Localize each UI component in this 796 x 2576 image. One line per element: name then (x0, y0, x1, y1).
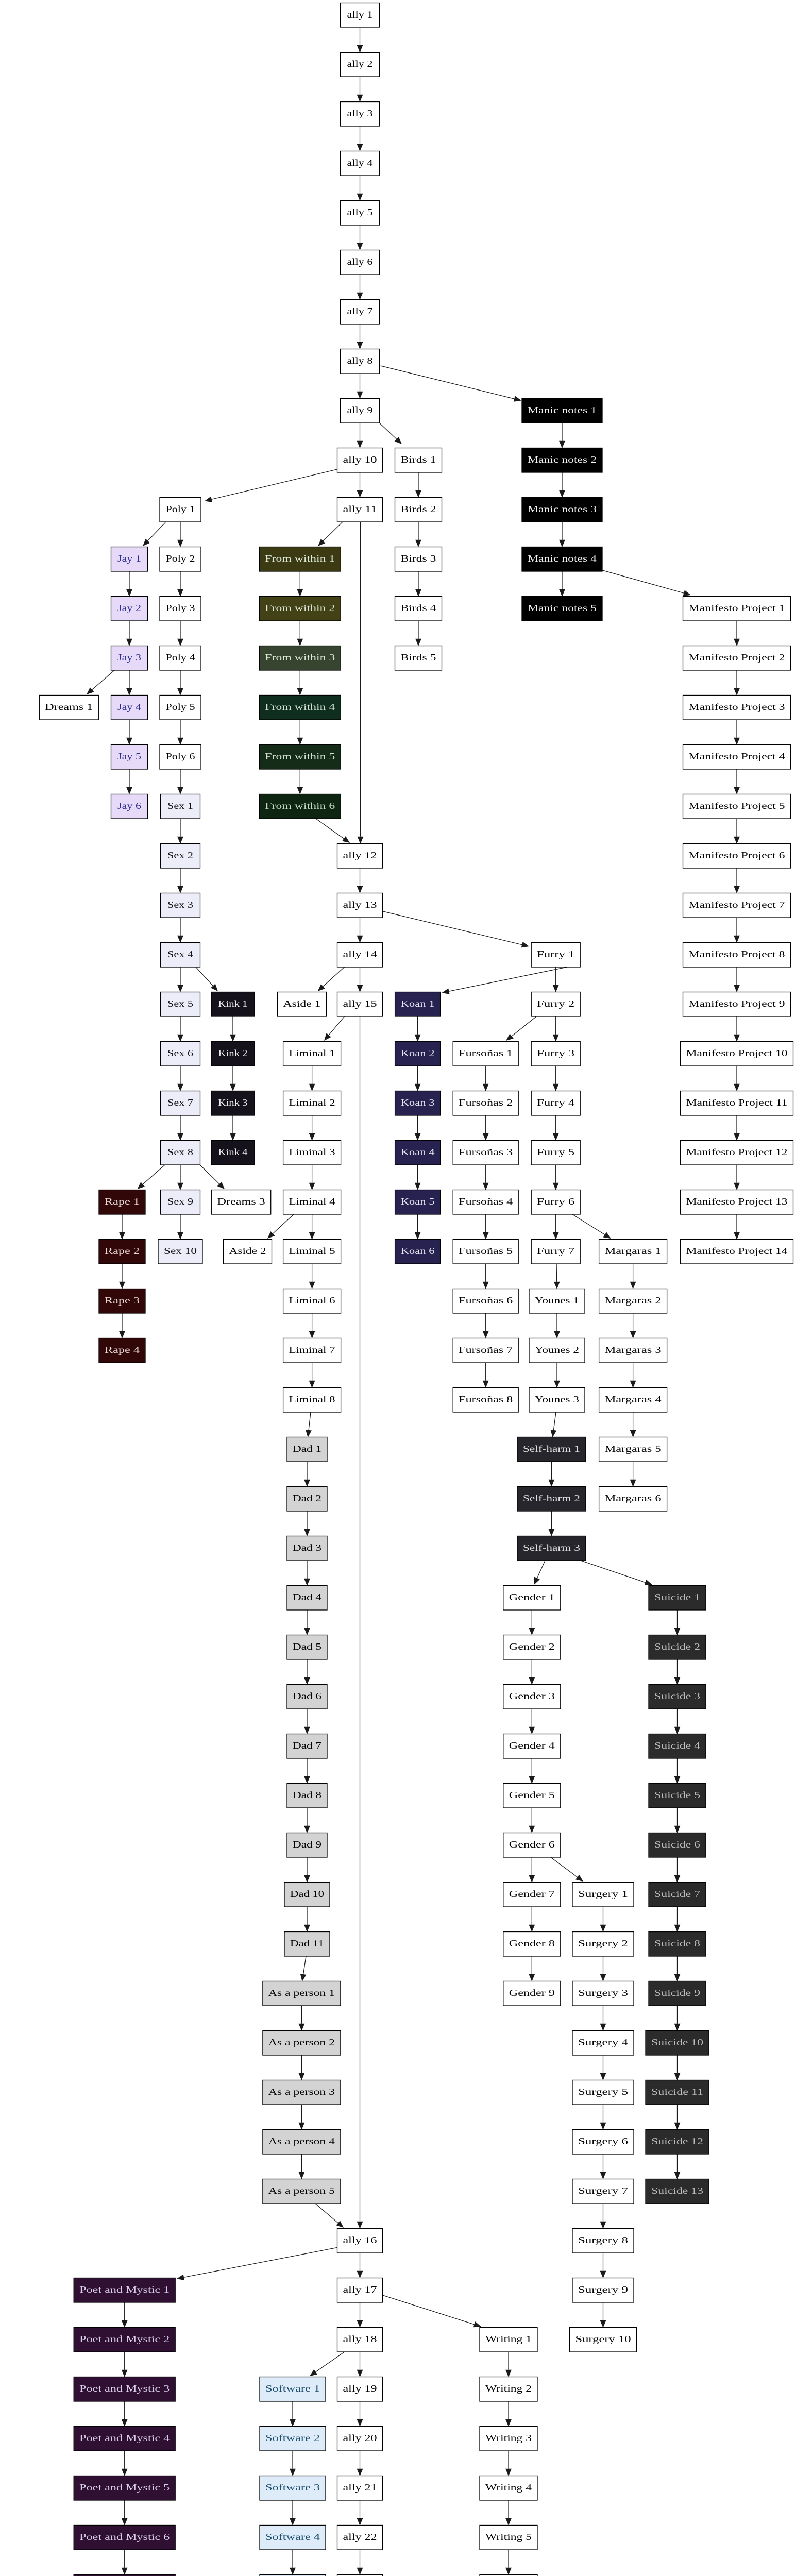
svg-text:ally 14: ally 14 (343, 949, 377, 959)
svg-text:Margaras 3: Margaras 3 (605, 1345, 662, 1355)
svg-text:Suicide 7: Suicide 7 (654, 1889, 700, 1899)
svg-text:Poly 3: Poly 3 (166, 603, 195, 613)
svg-text:Dad 6: Dad 6 (293, 1691, 321, 1701)
svg-text:Younes 1: Younes 1 (535, 1295, 579, 1306)
svg-text:Koan 4: Koan 4 (401, 1147, 435, 1157)
svg-text:ally 4: ally 4 (347, 158, 373, 168)
svg-text:ally 22: ally 22 (343, 2532, 377, 2542)
svg-text:Manifesto Project 9: Manifesto Project 9 (689, 998, 785, 1009)
svg-text:Suicide 4: Suicide 4 (654, 1740, 700, 1751)
svg-text:Margaras 6: Margaras 6 (605, 1493, 662, 1503)
svg-text:Liminal 1: Liminal 1 (289, 1048, 335, 1058)
svg-text:Suicide 5: Suicide 5 (654, 1790, 700, 1800)
svg-text:Manifesto Project 11: Manifesto Project 11 (686, 1097, 788, 1108)
svg-text:Koan 3: Koan 3 (401, 1097, 435, 1108)
svg-text:Poet and Mystic 3: Poet and Mystic 3 (79, 2383, 170, 2394)
svg-text:Gender 1: Gender 1 (509, 1592, 555, 1602)
svg-text:From within 5: From within 5 (265, 751, 335, 761)
svg-text:ally 17: ally 17 (343, 2284, 377, 2295)
svg-text:Gender 2: Gender 2 (509, 1641, 555, 1652)
svg-text:Manifesto Project 10: Manifesto Project 10 (686, 1048, 788, 1058)
svg-text:Surgery 7: Surgery 7 (578, 2185, 628, 2196)
svg-text:Koan 1: Koan 1 (401, 998, 435, 1009)
svg-text:Jay 5: Jay 5 (117, 751, 141, 761)
svg-text:Writing 5: Writing 5 (485, 2532, 532, 2542)
svg-text:Jay 3: Jay 3 (117, 652, 141, 663)
svg-text:Furry 5: Furry 5 (537, 1147, 574, 1157)
svg-text:Suicide 8: Suicide 8 (654, 1938, 700, 1948)
svg-text:Birds 3: Birds 3 (401, 553, 436, 564)
svg-text:Poly 5: Poly 5 (166, 702, 195, 712)
svg-text:Suicide 10: Suicide 10 (651, 2037, 703, 2047)
svg-text:ally 15: ally 15 (343, 998, 377, 1009)
svg-text:Margaras 5: Margaras 5 (605, 1444, 662, 1454)
svg-text:Younes 3: Younes 3 (535, 1394, 579, 1404)
svg-text:Liminal 8: Liminal 8 (289, 1394, 335, 1404)
svg-text:Fursoñas 3: Fursoñas 3 (459, 1147, 513, 1157)
svg-text:Dad 3: Dad 3 (293, 1543, 321, 1553)
svg-text:Sex 3: Sex 3 (167, 900, 193, 910)
svg-text:Software 3: Software 3 (265, 2482, 320, 2493)
svg-text:Manifesto Project 1: Manifesto Project 1 (689, 603, 785, 613)
svg-text:Rape 3: Rape 3 (105, 1295, 140, 1306)
svg-text:Gender 8: Gender 8 (509, 1938, 555, 1948)
svg-text:Liminal 3: Liminal 3 (289, 1147, 335, 1157)
svg-text:Fursoñas 6: Fursoñas 6 (459, 1295, 513, 1306)
svg-text:Sex 8: Sex 8 (167, 1147, 193, 1157)
svg-text:Manifesto Project 12: Manifesto Project 12 (686, 1147, 788, 1157)
svg-text:Gender 7: Gender 7 (509, 1889, 555, 1899)
svg-text:Jay 6: Jay 6 (117, 801, 141, 811)
svg-text:Poet and Mystic 4: Poet and Mystic 4 (79, 2433, 170, 2443)
svg-text:Software 2: Software 2 (265, 2433, 320, 2443)
svg-text:Margaras 4: Margaras 4 (605, 1394, 662, 1404)
svg-text:Sex 1: Sex 1 (167, 801, 193, 811)
svg-text:Surgery 1: Surgery 1 (578, 1889, 628, 1899)
svg-text:Manifesto Project 14: Manifesto Project 14 (686, 1246, 788, 1256)
svg-text:Surgery 9: Surgery 9 (578, 2284, 628, 2295)
svg-text:Liminal 7: Liminal 7 (289, 1345, 335, 1355)
svg-text:Margaras 2: Margaras 2 (605, 1295, 662, 1306)
svg-text:From within 6: From within 6 (265, 801, 335, 811)
svg-text:Birds 2: Birds 2 (401, 504, 436, 514)
svg-text:ally 13: ally 13 (343, 900, 377, 910)
svg-text:ally 10: ally 10 (343, 454, 377, 465)
svg-text:Software 4: Software 4 (265, 2532, 320, 2542)
svg-text:Fursoñas 7: Fursoñas 7 (459, 1345, 513, 1355)
svg-text:Birds 5: Birds 5 (401, 652, 436, 663)
svg-text:Sex 6: Sex 6 (167, 1048, 193, 1058)
svg-text:Liminal 4: Liminal 4 (289, 1196, 335, 1207)
svg-text:Fursoñas 1: Fursoñas 1 (459, 1048, 513, 1058)
svg-text:Surgery 5: Surgery 5 (578, 2087, 628, 2097)
svg-text:Dad 7: Dad 7 (293, 1740, 321, 1751)
svg-text:Koan 6: Koan 6 (401, 1246, 435, 1256)
svg-text:ally 19: ally 19 (343, 2383, 377, 2394)
svg-text:As a person 4: As a person 4 (268, 2136, 335, 2146)
svg-text:Jay 1: Jay 1 (117, 553, 141, 564)
svg-text:Suicide 9: Suicide 9 (654, 1988, 700, 1998)
svg-text:Poet and Mystic 6: Poet and Mystic 6 (79, 2532, 170, 2542)
svg-text:Dad 4: Dad 4 (293, 1592, 321, 1602)
svg-text:Kink 3: Kink 3 (218, 1097, 248, 1108)
svg-text:ally 1: ally 1 (347, 9, 373, 20)
svg-text:Manic notes 4: Manic notes 4 (528, 553, 597, 564)
svg-text:Surgery 8: Surgery 8 (578, 2235, 628, 2245)
svg-text:Suicide 6: Suicide 6 (654, 1839, 700, 1850)
svg-text:ally 16: ally 16 (343, 2235, 377, 2245)
svg-text:Poet and Mystic 2: Poet and Mystic 2 (79, 2334, 170, 2344)
svg-text:Rape 2: Rape 2 (105, 1246, 140, 1256)
svg-text:Self-harm 2: Self-harm 2 (523, 1493, 580, 1503)
svg-text:Writing 3: Writing 3 (485, 2433, 532, 2443)
svg-text:Surgery 4: Surgery 4 (578, 2037, 628, 2047)
svg-text:Jay 4: Jay 4 (117, 702, 141, 712)
svg-text:Manifesto Project 5: Manifesto Project 5 (689, 801, 785, 811)
svg-text:ally 2: ally 2 (347, 59, 373, 69)
svg-text:Suicide 2: Suicide 2 (654, 1641, 700, 1652)
svg-text:Poly 6: Poly 6 (166, 751, 195, 761)
svg-text:Manifesto Project 8: Manifesto Project 8 (689, 949, 785, 959)
svg-text:Suicide 1: Suicide 1 (654, 1592, 700, 1602)
svg-text:Poly 1: Poly 1 (166, 504, 195, 514)
svg-text:Koan 5: Koan 5 (401, 1196, 435, 1207)
svg-text:Dad 8: Dad 8 (293, 1790, 321, 1800)
svg-text:Liminal 6: Liminal 6 (289, 1295, 335, 1306)
svg-text:Manic notes 5: Manic notes 5 (528, 603, 597, 613)
svg-text:Gender 6: Gender 6 (509, 1839, 555, 1850)
svg-text:Dreams 3: Dreams 3 (217, 1196, 265, 1207)
svg-text:Manic notes 3: Manic notes 3 (528, 504, 597, 514)
svg-text:Birds 4: Birds 4 (401, 603, 436, 613)
svg-text:Suicide 3: Suicide 3 (654, 1691, 700, 1701)
svg-text:Aside 2: Aside 2 (229, 1246, 266, 1256)
svg-text:Kink 4: Kink 4 (218, 1147, 248, 1157)
svg-text:From within 4: From within 4 (265, 702, 335, 712)
svg-text:Fursoñas 4: Fursoñas 4 (459, 1196, 513, 1207)
svg-text:Self-harm 1: Self-harm 1 (523, 1444, 580, 1454)
svg-text:Manifesto Project 2: Manifesto Project 2 (689, 652, 785, 663)
svg-text:Dreams 1: Dreams 1 (45, 702, 93, 712)
svg-text:Birds 1: Birds 1 (401, 454, 436, 465)
svg-text:Poet and Mystic 1: Poet and Mystic 1 (79, 2284, 170, 2295)
svg-text:Surgery 3: Surgery 3 (578, 1988, 628, 1998)
svg-text:Younes 2: Younes 2 (535, 1345, 579, 1355)
svg-text:Kink 2: Kink 2 (218, 1048, 248, 1058)
svg-text:Manifesto Project 13: Manifesto Project 13 (686, 1196, 788, 1207)
svg-text:Manic notes 2: Manic notes 2 (528, 454, 597, 465)
svg-text:Surgery 10: Surgery 10 (575, 2334, 631, 2344)
svg-text:Suicide 11: Suicide 11 (651, 2087, 703, 2097)
svg-text:ally 12: ally 12 (343, 850, 377, 860)
svg-text:Sex 4: Sex 4 (167, 949, 193, 959)
svg-text:ally 18: ally 18 (343, 2334, 377, 2344)
svg-text:From within 1: From within 1 (265, 553, 335, 564)
svg-text:Manifesto Project 6: Manifesto Project 6 (689, 850, 785, 860)
svg-text:Surgery 2: Surgery 2 (578, 1938, 628, 1948)
svg-text:Furry 2: Furry 2 (537, 998, 574, 1009)
svg-text:Manifesto Project 3: Manifesto Project 3 (689, 702, 785, 712)
svg-text:Dad 1: Dad 1 (293, 1444, 321, 1454)
svg-text:Koan 2: Koan 2 (401, 1048, 435, 1058)
svg-text:As a person 3: As a person 3 (268, 2087, 335, 2097)
svg-text:ally 3: ally 3 (347, 108, 373, 118)
svg-text:Furry 1: Furry 1 (537, 949, 574, 959)
svg-text:From within 3: From within 3 (265, 652, 335, 663)
svg-text:Furry 4: Furry 4 (537, 1097, 574, 1108)
svg-text:Aside 1: Aside 1 (283, 998, 321, 1009)
svg-text:Suicide 12: Suicide 12 (651, 2136, 703, 2146)
svg-text:ally 8: ally 8 (347, 355, 373, 366)
svg-text:As a person 1: As a person 1 (268, 1988, 335, 1998)
svg-text:Sex 9: Sex 9 (167, 1196, 193, 1207)
svg-text:Suicide 13: Suicide 13 (651, 2185, 703, 2196)
svg-text:ally 11: ally 11 (343, 504, 377, 514)
svg-text:Poly 4: Poly 4 (166, 652, 195, 663)
svg-text:Furry 3: Furry 3 (537, 1048, 574, 1058)
svg-text:Writing 4: Writing 4 (485, 2482, 532, 2493)
svg-text:Rape 1: Rape 1 (105, 1196, 140, 1207)
svg-text:Fursoñas 2: Fursoñas 2 (459, 1097, 513, 1108)
svg-text:Surgery 6: Surgery 6 (578, 2136, 628, 2146)
svg-text:ally 6: ally 6 (347, 257, 373, 267)
svg-text:Gender 3: Gender 3 (509, 1691, 555, 1701)
svg-text:Kink 1: Kink 1 (218, 998, 248, 1009)
svg-text:As a person 2: As a person 2 (268, 2037, 335, 2047)
svg-text:Software 1: Software 1 (265, 2383, 320, 2394)
svg-text:Liminal 5: Liminal 5 (289, 1246, 335, 1256)
svg-text:Fursoñas 5: Fursoñas 5 (459, 1246, 513, 1256)
svg-text:Sex 2: Sex 2 (167, 850, 193, 860)
svg-text:Dad 5: Dad 5 (293, 1641, 321, 1652)
svg-text:Poet and Mystic 5: Poet and Mystic 5 (79, 2482, 170, 2493)
svg-text:Manifesto Project 4: Manifesto Project 4 (689, 751, 785, 761)
svg-text:ally 20: ally 20 (343, 2433, 377, 2443)
svg-text:Sex 7: Sex 7 (167, 1097, 193, 1108)
svg-text:ally 7: ally 7 (347, 306, 373, 316)
svg-text:Dad 9: Dad 9 (293, 1839, 321, 1850)
svg-text:Manifesto Project 7: Manifesto Project 7 (689, 900, 785, 910)
svg-text:Gender 9: Gender 9 (509, 1988, 555, 1998)
svg-text:Fursoñas 8: Fursoñas 8 (459, 1394, 513, 1404)
svg-text:Dad 11: Dad 11 (290, 1938, 324, 1948)
svg-text:Rape 4: Rape 4 (105, 1345, 140, 1355)
svg-text:Manic notes 1: Manic notes 1 (528, 405, 597, 415)
svg-text:Writing 1: Writing 1 (485, 2334, 532, 2344)
svg-text:As a person 5: As a person 5 (268, 2185, 335, 2196)
svg-text:From within 2: From within 2 (265, 603, 335, 613)
svg-text:Gender 4: Gender 4 (509, 1740, 555, 1751)
svg-text:Sex 5: Sex 5 (167, 998, 193, 1009)
svg-text:Poly 2: Poly 2 (166, 553, 195, 564)
svg-text:Furry 6: Furry 6 (537, 1196, 574, 1207)
svg-text:Self-harm 3: Self-harm 3 (523, 1543, 580, 1553)
svg-text:Gender 5: Gender 5 (509, 1790, 555, 1800)
svg-text:Liminal 2: Liminal 2 (289, 1097, 335, 1108)
svg-text:Margaras 1: Margaras 1 (605, 1246, 662, 1256)
svg-text:ally 5: ally 5 (347, 207, 373, 217)
svg-text:ally 21: ally 21 (343, 2482, 377, 2493)
svg-text:Dad 10: Dad 10 (290, 1889, 324, 1899)
svg-text:Furry 7: Furry 7 (537, 1246, 574, 1256)
svg-text:Sex 10: Sex 10 (164, 1246, 197, 1256)
svg-text:Writing 2: Writing 2 (485, 2383, 532, 2394)
svg-text:Dad 2: Dad 2 (293, 1493, 321, 1503)
svg-text:Jay 2: Jay 2 (117, 603, 141, 613)
svg-text:ally 9: ally 9 (347, 405, 373, 415)
